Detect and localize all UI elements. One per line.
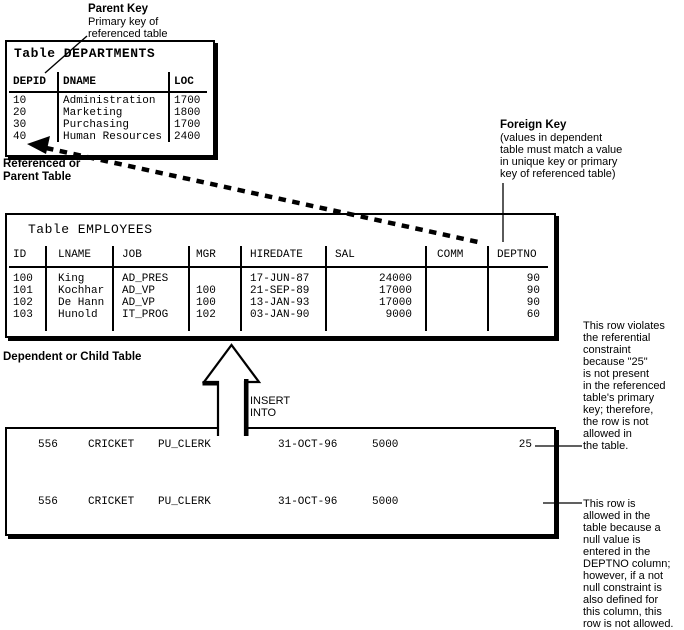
insert-arrow-shadow-right: [244, 379, 249, 436]
insert-block-arrow-icon: [204, 345, 259, 436]
diagram-canvas: Parent Key Primary key of referenced tab…: [0, 0, 684, 630]
insert-arrow-shadow-left: [203, 381, 219, 386]
insert-arrow-layer: [0, 0, 684, 630]
